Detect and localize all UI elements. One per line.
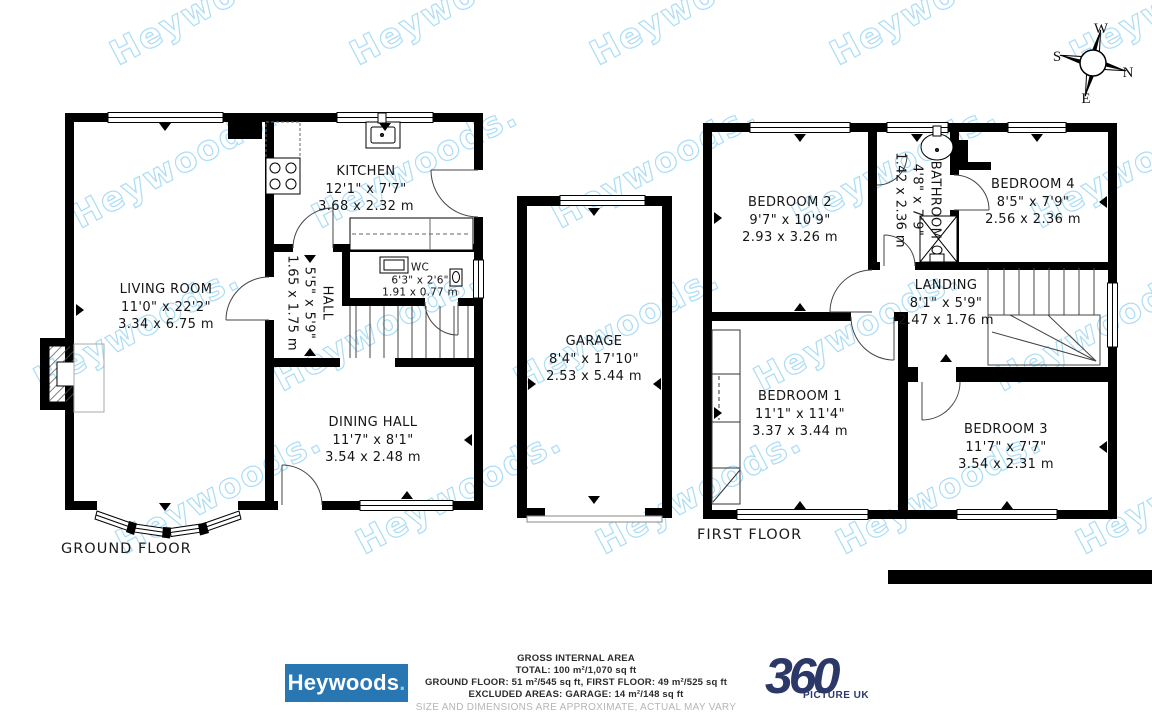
room-size-imperial: 11'1" x 11'4"	[752, 405, 848, 423]
room-size-metric: 3.54 x 2.31 m	[958, 456, 1054, 474]
room-size-imperial: 6'3" x 2'6"	[382, 274, 458, 287]
room-name: BEDROOM 2	[742, 194, 838, 212]
room-name: LIVING ROOM	[118, 281, 214, 299]
room-size-imperial: 11'0" x 22'2"	[118, 298, 214, 316]
ground-floor-label: GROUND FLOOR	[61, 541, 192, 557]
room-name: HALL	[318, 255, 336, 351]
heywoods-logo: Heywoods.	[285, 664, 408, 702]
room-size-imperial: 12'1" x 7'7"	[318, 180, 414, 198]
room-size-metric: 3.34 x 6.75 m	[118, 316, 214, 334]
area-disclaimer: SIZE AND DIMENSIONS ARE APPROXIMATE, ACT…	[396, 701, 756, 714]
room-size-imperial: 8'1" x 5'9"	[898, 294, 994, 312]
area-total: TOTAL: 100 m²/1,070 sq ft	[396, 665, 756, 677]
room-name: KITCHEN	[318, 163, 414, 181]
room-label-bedroom-3: BEDROOM 3 11'7" x 7'7" 3.54 x 2.31 m	[958, 421, 1054, 474]
room-size-imperial: 11'7" x 8'1"	[325, 431, 421, 449]
bottom-divider-bar	[888, 570, 1152, 584]
room-size-metric: 2.53 x 5.44 m	[546, 368, 642, 386]
watermark-text: Heywoods.	[103, 0, 322, 74]
room-label-garage: GARAGE 8'4" x 17'10" 2.53 x 5.44 m	[546, 333, 642, 386]
compass-north-label: N	[1123, 65, 1134, 81]
room-label-bedroom-2: BEDROOM 2 9'7" x 10'9" 2.93 x 3.26 m	[742, 194, 838, 247]
360-logo-subtext: PICTURE UK	[803, 690, 869, 701]
area-title: GROSS INTERNAL AREA	[396, 653, 756, 665]
room-name: BEDROOM 3	[958, 421, 1054, 439]
watermark-text: Heywoods.	[545, 95, 764, 237]
room-size-metric: 1.42 x 2.36 m	[891, 152, 909, 248]
room-size-metric: 3.54 x 2.48 m	[325, 449, 421, 467]
room-size-imperial: 11'7" x 7'7"	[958, 438, 1054, 456]
room-label-bathroom: BATHROOM 4'8" x 7'9" 1.42 x 2.36 m	[891, 152, 944, 248]
room-label-wc: WC 6'3" x 2'6" 1.91 x 0.77 m	[382, 261, 458, 299]
room-name: DINING HALL	[325, 414, 421, 432]
room-size-metric: 2.47 x 1.76 m	[898, 312, 994, 330]
room-size-metric: 1.65 x 1.75 m	[283, 255, 301, 351]
room-label-landing: LANDING 8'1" x 5'9" 2.47 x 1.76 m	[898, 277, 994, 330]
room-name: BEDROOM 1	[752, 388, 848, 406]
compass-east-label: E	[1081, 91, 1090, 107]
room-label-kitchen: KITCHEN 12'1" x 7'7" 3.68 x 2.32 m	[318, 163, 414, 216]
room-label-hall: HALL 5'5" x 5'9" 1.65 x 1.75 m	[283, 255, 336, 351]
area-excluded: EXCLUDED AREAS: GARAGE: 14 m²/148 sq ft	[396, 689, 756, 701]
watermark-text: Heywoods.	[823, 0, 1042, 74]
room-label-bedroom-1: BEDROOM 1 11'1" x 11'4" 3.37 x 3.44 m	[752, 388, 848, 441]
room-name: WC	[382, 261, 458, 274]
compass-west-label: W	[1094, 21, 1109, 37]
heywoods-logo-text: Heywoods	[288, 670, 400, 696]
room-size-metric: 2.93 x 3.26 m	[742, 229, 838, 247]
room-size-metric: 1.91 x 0.77 m	[382, 286, 458, 299]
area-floors: GROUND FLOOR: 51 m²/545 sq ft, FIRST FLO…	[396, 677, 756, 689]
room-label-dining-hall: DINING HALL 11'7" x 8'1" 3.54 x 2.48 m	[325, 414, 421, 467]
room-size-imperial: 5'5" x 5'9"	[300, 255, 318, 351]
garage-door	[527, 516, 662, 522]
room-name: GARAGE	[546, 333, 642, 351]
room-name: LANDING	[898, 277, 994, 295]
room-name: BEDROOM 4	[985, 176, 1081, 194]
floorplan-page: { "watermark": {"text": "Heywoods.", "co…	[0, 0, 1152, 720]
360-picture-uk-logo: 360 PICTURE UK	[765, 648, 880, 710]
garage-window	[560, 196, 645, 206]
watermark-text: Heywoods.	[583, 0, 802, 74]
toilet-icon	[930, 246, 944, 262]
room-label-living-room: LIVING ROOM 11'0" x 22'2" 3.34 x 6.75 m	[118, 281, 214, 334]
first-floor-label: FIRST FLOOR	[697, 527, 802, 543]
area-summary: GROSS INTERNAL AREA TOTAL: 100 m²/1,070 …	[396, 653, 756, 714]
compass-south-label: S	[1053, 49, 1061, 65]
room-size-imperial: 4'8" x 7'9"	[908, 152, 926, 248]
room-size-imperial: 8'5" x 7'9"	[985, 193, 1081, 211]
room-size-metric: 3.37 x 3.44 m	[752, 423, 848, 441]
room-label-bedroom-4: BEDROOM 4 8'5" x 7'9" 2.56 x 2.36 m	[985, 176, 1081, 229]
room-name: BATHROOM	[926, 152, 944, 248]
room-size-imperial: 9'7" x 10'9"	[742, 211, 838, 229]
room-size-imperial: 8'4" x 17'10"	[546, 350, 642, 368]
watermark-text: Heywoods.	[343, 0, 562, 74]
room-size-metric: 3.68 x 2.32 m	[318, 198, 414, 216]
room-size-metric: 2.56 x 2.36 m	[985, 211, 1081, 229]
